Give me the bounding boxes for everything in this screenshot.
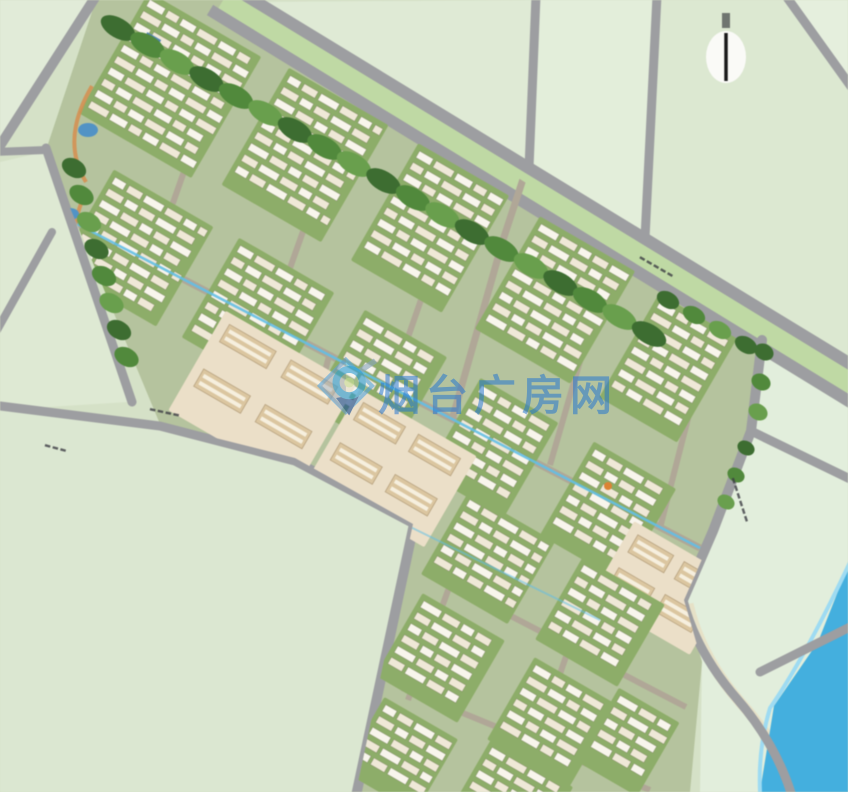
pond	[78, 123, 98, 137]
map-canvas: 烟台广房网	[0, 0, 848, 792]
site-plan-map	[0, 0, 848, 792]
road	[0, 150, 46, 152]
orange-marker	[604, 482, 612, 490]
